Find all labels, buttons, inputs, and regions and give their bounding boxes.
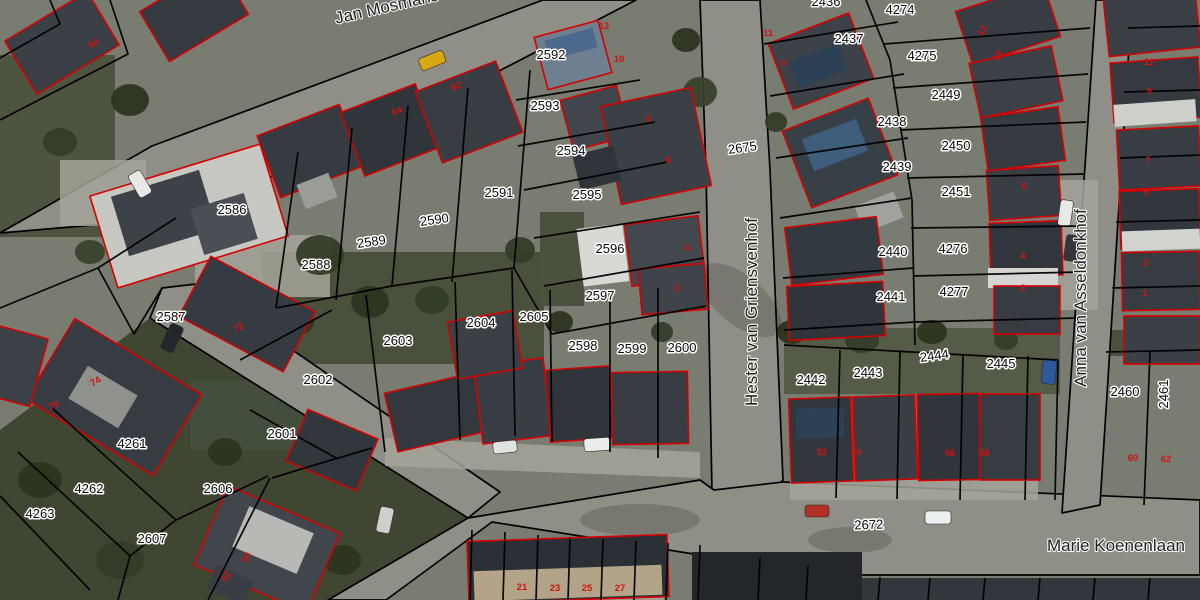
parcel-label-2445: 2445 <box>987 356 1016 371</box>
parcel-label-2450: 2450 <box>942 138 971 153</box>
house-number-54: 54 <box>851 447 862 458</box>
parcel-label-2451: 2451 <box>942 184 971 199</box>
tree-canopy <box>18 462 62 498</box>
parcel-label-2438: 2438 <box>878 114 907 129</box>
parcel-label-2440: 2440 <box>879 244 908 259</box>
tree-canopy <box>208 438 242 466</box>
house-number-9: 9 <box>1146 86 1151 97</box>
parcel-label-2587: 2587 <box>157 309 186 324</box>
parcel-label-2605: 2605 <box>520 309 549 324</box>
parcel-label-4276: 4276 <box>939 241 968 256</box>
house-number-1: 1 <box>1142 288 1148 299</box>
tree-shadow <box>580 504 700 536</box>
house-number-3: 3 <box>1143 258 1148 269</box>
parcel-label-2593: 2593 <box>531 98 560 113</box>
house-number-5: 5 <box>1143 187 1149 198</box>
building-roof <box>994 286 1060 334</box>
parcel-label-4263: 4263 <box>26 506 55 521</box>
parcel-label-4262: 4262 <box>75 481 104 496</box>
house-number-11: 11 <box>763 28 774 39</box>
aerial-map-viewport[interactable]: 2586258825892590258725912592259325942595… <box>0 0 1200 600</box>
vegetation-patch <box>540 212 584 306</box>
building-roof <box>546 366 615 442</box>
parcel-label-4261: 4261 <box>118 436 147 451</box>
house-number-23: 23 <box>550 583 561 594</box>
house-number-6: 6 <box>1021 181 1026 192</box>
parcel-label-2603: 2603 <box>384 333 413 348</box>
parcel-label-2597: 2597 <box>586 288 615 303</box>
house-number-12: 12 <box>599 21 610 32</box>
cadastral-map: 2586258825892590258725912592259325942595… <box>0 0 1200 600</box>
parcel-label-2600: 2600 <box>668 340 697 355</box>
parcel-label-2442: 2442 <box>797 372 826 387</box>
building-roof <box>1103 0 1200 57</box>
house-number-2: 2 <box>674 283 679 294</box>
house-number-4: 4 <box>1020 251 1026 262</box>
tree-canopy <box>43 128 77 156</box>
car <box>1041 359 1057 384</box>
tree-canopy <box>672 28 700 52</box>
street-label-hester-van-griensvenhof: Hester van Griensvenhof <box>742 218 761 406</box>
house-number-7: 7 <box>1145 155 1150 166</box>
parcel-label-2601: 2601 <box>268 426 297 441</box>
car <box>805 505 829 517</box>
car <box>492 440 517 454</box>
house-number-6: 6 <box>665 155 670 166</box>
street-label-marie-koenenlaan: Marie Koenenlaan <box>1047 536 1185 555</box>
building-roof <box>1122 229 1200 252</box>
building-roof <box>917 393 980 480</box>
building-roof <box>692 552 862 600</box>
parcel-label-2591: 2591 <box>485 185 514 200</box>
house-number-60: 60 <box>1128 453 1139 464</box>
street-label-anna-van-asseldonkhof: Anna van Asseldonkhof <box>1071 209 1090 387</box>
car <box>584 437 611 452</box>
tree-canopy <box>505 237 535 263</box>
parcel-label-4277: 4277 <box>940 284 969 299</box>
house-number-8: 8 <box>645 114 650 125</box>
building-roof <box>853 395 918 481</box>
parcel-label-2602: 2602 <box>304 372 333 387</box>
road-parcel-label-2672: 2672 <box>854 517 883 533</box>
house-number-58: 58 <box>979 448 990 459</box>
tree-canopy <box>111 84 149 116</box>
building-roof <box>980 394 1040 480</box>
house-number-9: 9 <box>780 58 785 69</box>
parcel-label-4274: 4274 <box>886 2 915 17</box>
parcel-label-2436: 2436 <box>812 0 841 9</box>
house-number-56: 56 <box>945 448 956 459</box>
house-number-52: 52 <box>817 447 828 458</box>
building-roof <box>981 107 1066 171</box>
tree-canopy <box>917 320 947 344</box>
building-roof <box>601 88 712 205</box>
parcel-label-2460: 2460 <box>1111 384 1140 399</box>
parcel-label-2586: 2586 <box>218 202 247 217</box>
parcel-label-2443: 2443 <box>854 365 883 380</box>
house-number-25: 25 <box>582 583 593 594</box>
parcel-label-2461: 2461 <box>1156 380 1171 409</box>
tree-canopy <box>75 240 105 264</box>
building-roof <box>785 217 883 286</box>
house-number-4: 4 <box>684 243 690 254</box>
parcel-label-2596: 2596 <box>596 241 625 256</box>
building-roof <box>611 371 688 444</box>
parcel-label-2598: 2598 <box>569 338 598 353</box>
parcel-label-2449: 2449 <box>932 87 961 102</box>
house-number-10: 10 <box>614 54 625 65</box>
tree-canopy <box>651 322 673 342</box>
building-roof <box>1124 316 1200 364</box>
tree-canopy <box>415 286 449 314</box>
building-roof <box>986 166 1061 221</box>
parcel-label-2439: 2439 <box>883 159 912 174</box>
house-number-2: 2 <box>1020 283 1025 294</box>
house-number-27: 27 <box>615 583 626 594</box>
tree-canopy <box>765 112 787 132</box>
house-number-62: 62 <box>1161 454 1172 465</box>
parcel-label-2594: 2594 <box>557 143 586 158</box>
building-roof <box>787 282 886 341</box>
car <box>925 511 951 524</box>
house-number-11: 11 <box>1144 57 1155 68</box>
parcel-label-4275: 4275 <box>908 48 937 63</box>
house-number-21: 21 <box>517 582 528 593</box>
parcel-label-2592: 2592 <box>537 47 566 62</box>
parcel-label-2437: 2437 <box>835 31 864 46</box>
parcel-label-2441: 2441 <box>877 289 906 304</box>
building-roof <box>1121 251 1200 310</box>
parcel-label-2607: 2607 <box>138 531 167 546</box>
parcel-label-2604: 2604 <box>467 315 496 330</box>
parcel-label-2588: 2588 <box>302 257 331 272</box>
parcel-label-2595: 2595 <box>573 187 602 202</box>
parcel-label-2599: 2599 <box>618 341 647 356</box>
parcel-label-2606: 2606 <box>204 481 233 496</box>
